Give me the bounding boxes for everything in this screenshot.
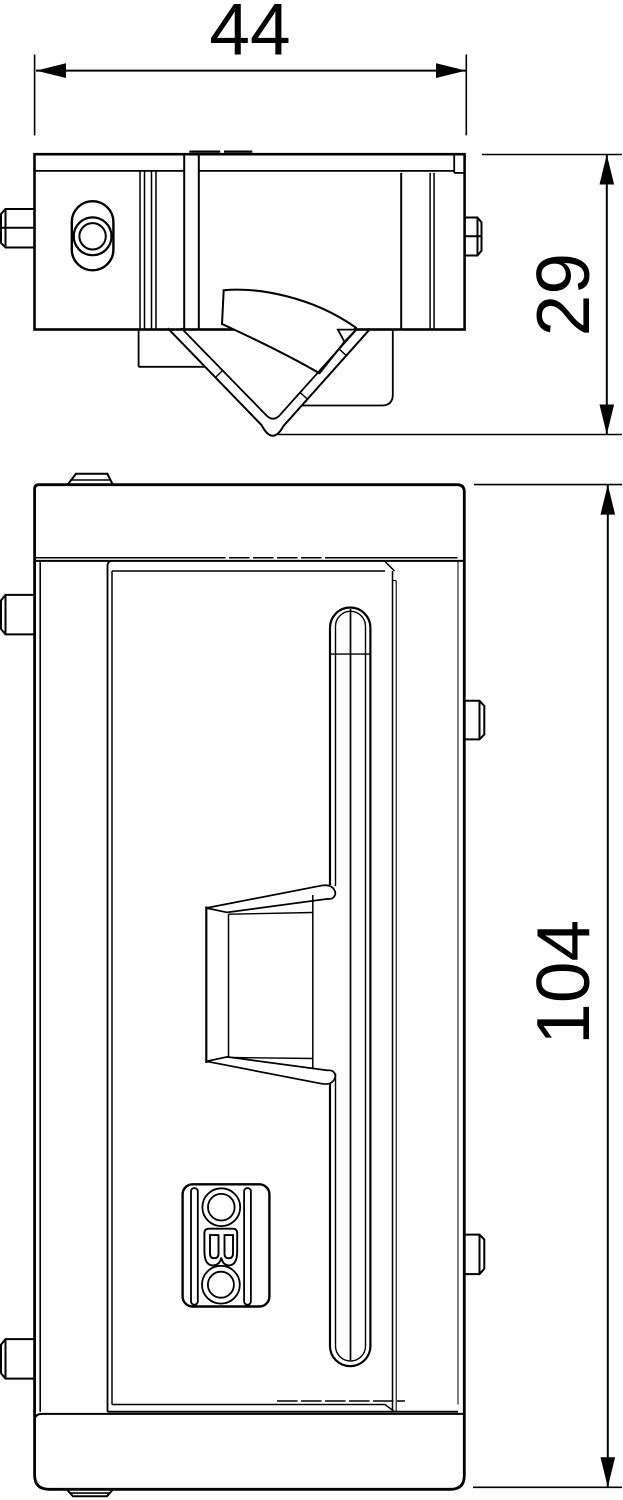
svg-text:104: 104 (521, 920, 605, 1045)
svg-text:44: 44 (209, 0, 290, 71)
svg-text:29: 29 (521, 253, 605, 336)
